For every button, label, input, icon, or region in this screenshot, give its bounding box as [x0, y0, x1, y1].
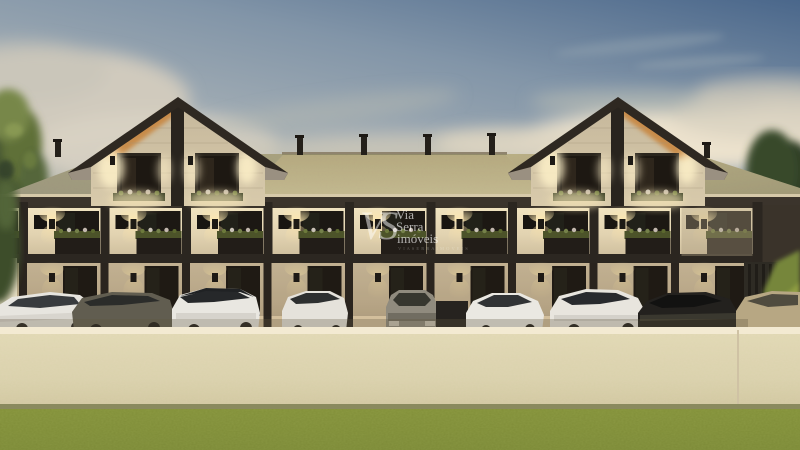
svg-text:V I A S E R R A I M O V E I S: V I A S E R R A I M O V E I S — [398, 246, 468, 251]
svg-text:imóveis: imóveis — [397, 231, 438, 246]
